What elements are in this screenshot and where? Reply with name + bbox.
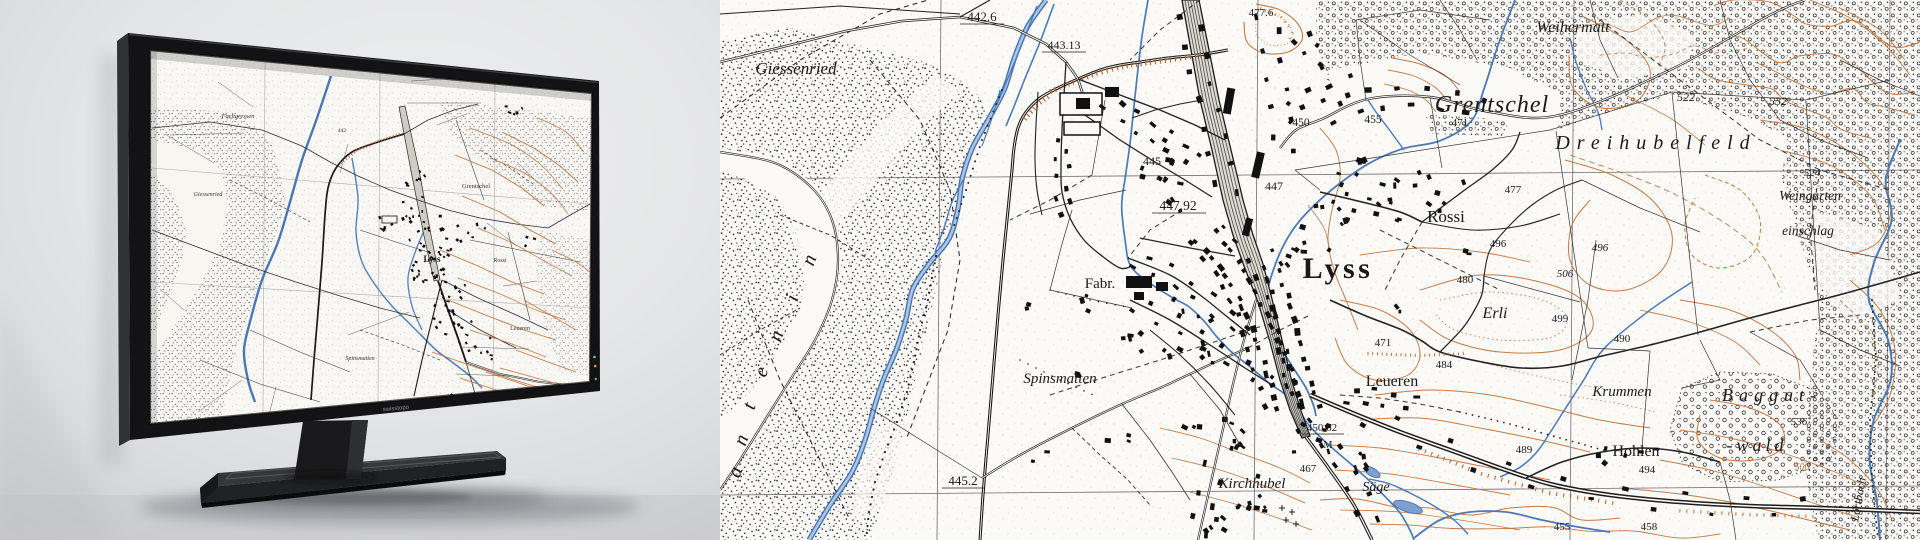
svg-text:442: 442 [338, 128, 347, 134]
svg-text:-wald: -wald [1726, 435, 1787, 455]
svg-text:494: 494 [1639, 464, 1656, 476]
svg-text:455: 455 [1554, 521, 1571, 533]
svg-text:Rossi: Rossi [1427, 207, 1465, 226]
svg-text:Lyss: Lyss [1303, 252, 1374, 285]
svg-text:Weingarten: Weingarten [1779, 188, 1841, 203]
svg-text:500: 500 [1795, 462, 1810, 473]
svg-text:Giessenried: Giessenried [194, 192, 224, 198]
svg-text:536: 536 [1791, 416, 1808, 428]
svg-text:522: 522 [1677, 90, 1695, 104]
svg-text:532: 532 [1769, 94, 1787, 108]
svg-text:445.2: 445.2 [948, 473, 977, 488]
svg-text:Spinsmatten: Spinsmatten [1023, 371, 1096, 387]
svg-text:Weihermatt: Weihermatt [1536, 19, 1610, 36]
svg-text:447: 447 [1265, 179, 1283, 193]
svg-text:450.62: 450.62 [1307, 422, 1337, 434]
svg-text:Fabr.: Fabr. [1085, 276, 1115, 292]
svg-text:Erli: Erli [1482, 305, 1508, 322]
svg-text:einschlag: einschlag [1782, 223, 1834, 238]
svg-text:499: 499 [1552, 313, 1569, 325]
svg-text:Lyss: Lyss [423, 254, 441, 264]
svg-text:506: 506 [1557, 268, 1574, 280]
svg-text:484: 484 [1436, 359, 1453, 371]
svg-text:447.92: 447.92 [1159, 198, 1196, 213]
svg-text:Dreihubelfeld: Dreihubelfeld [1554, 132, 1756, 154]
svg-text:Hohlen: Hohlen [1612, 443, 1659, 460]
svg-text:Fachgressen: Fachgressen [221, 113, 255, 120]
svg-text:489: 489 [1516, 444, 1533, 456]
svg-text:496: 496 [1592, 242, 1609, 254]
svg-text:458: 458 [1641, 521, 1658, 533]
svg-text:477: 477 [1505, 184, 1522, 196]
svg-text:Grentschel: Grentschel [1435, 92, 1549, 118]
svg-text:Grentschel: Grentschel [462, 183, 490, 190]
svg-text:Kirchhubel: Kirchhubel [1218, 476, 1286, 492]
svg-text:442.6: 442.6 [967, 9, 997, 24]
svg-text:Giessenried: Giessenried [755, 59, 837, 78]
svg-text:Leueren: Leueren [1366, 373, 1418, 390]
svg-text:Säge: Säge [1362, 480, 1389, 495]
svg-text:Krummen: Krummen [1591, 384, 1651, 400]
svg-text:496: 496 [1490, 238, 1507, 250]
svg-text:Baggut-: Baggut- [1722, 385, 1822, 405]
svg-text:480: 480 [1457, 274, 1474, 286]
svg-text:455: 455 [1364, 114, 1382, 126]
svg-text:443.13: 443.13 [1048, 38, 1081, 52]
svg-text:M: M [1324, 440, 1333, 451]
svg-text:Spinsmatten: Spinsmatten [345, 356, 374, 362]
svg-text:467: 467 [1300, 463, 1317, 475]
svg-text:524: 524 [1804, 167, 1821, 179]
svg-text:471: 471 [1375, 337, 1392, 349]
svg-text:450: 450 [1292, 117, 1310, 129]
svg-text:445: 445 [1143, 154, 1161, 168]
svg-text:Rossi: Rossi [493, 258, 507, 264]
svg-text:477.6: 477.6 [1249, 7, 1274, 19]
svg-text:490: 490 [1614, 333, 1631, 345]
svg-text:471: 471 [1452, 117, 1469, 129]
